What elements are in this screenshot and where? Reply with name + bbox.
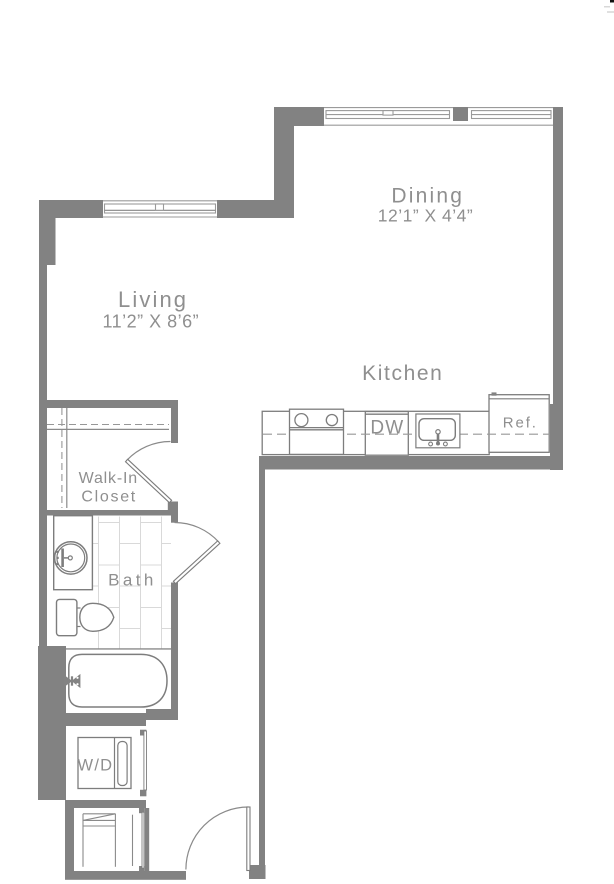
svg-text:12’1” X 4’4”: 12’1” X 4’4” bbox=[378, 206, 474, 226]
svg-text:Ref.: Ref. bbox=[503, 414, 538, 431]
svg-text:Dining: Dining bbox=[391, 184, 464, 207]
svg-text:Living: Living bbox=[118, 287, 188, 312]
svg-text:Bath: Bath bbox=[108, 571, 157, 590]
svg-text:DW: DW bbox=[370, 418, 404, 439]
svg-text:11’2” X 8’6”: 11’2” X 8’6” bbox=[102, 312, 199, 332]
svg-text:Kitchen: Kitchen bbox=[362, 362, 443, 385]
svg-text:Walk-In: Walk-In bbox=[79, 470, 138, 487]
svg-text:Closet: Closet bbox=[81, 488, 137, 505]
svg-text:W/D: W/D bbox=[78, 757, 114, 775]
